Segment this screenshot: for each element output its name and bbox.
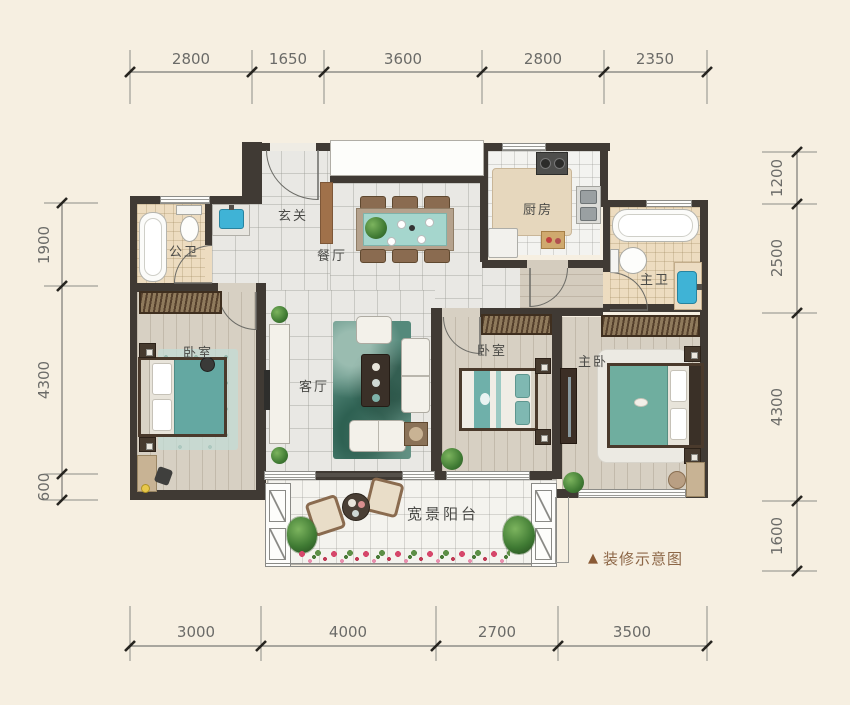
- floor-plan-canvas: 玄关 公卫 餐厅 厨房 主卫 卧室 客厅 卧室 主卧 宽景阳台 ▲ 装修示意图 …: [0, 0, 850, 705]
- dimension-linework: [0, 0, 850, 705]
- dimension-lines: [62, 72, 797, 646]
- dimension-ticks: [57, 67, 802, 651]
- extension-lines: [44, 50, 817, 661]
- door-leaves: [174, 150, 648, 354]
